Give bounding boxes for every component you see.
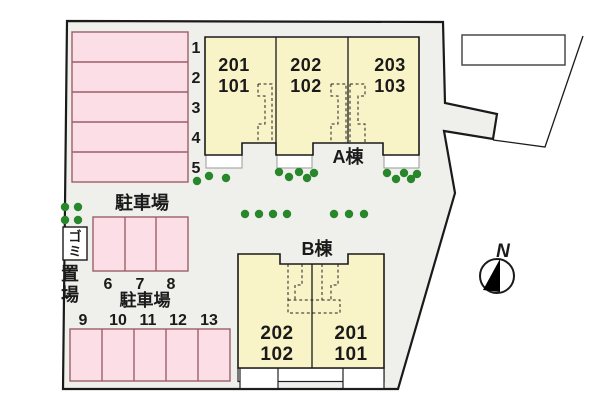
- parking-space-number: 1: [192, 40, 201, 57]
- parking-space-number: 12: [169, 312, 187, 329]
- parking-lot-lower-outline: [70, 329, 230, 381]
- unit-number: 201: [218, 55, 250, 75]
- building-a-balcony: [384, 155, 419, 168]
- unit-number: 202: [260, 323, 293, 344]
- site-plan-canvas: 1 2 3 4 5 駐車場 6 7 8 駐車場 9 10 11 12 13 ゴ …: [0, 0, 600, 400]
- unit-number: 101: [218, 76, 250, 96]
- parking-lot-upper-outline: [72, 32, 188, 182]
- building-b-label: B棟: [302, 238, 334, 259]
- unit-number: 101: [334, 344, 367, 365]
- unit-number: 103: [374, 76, 406, 96]
- parking-space-number: 4: [192, 130, 201, 147]
- unit-number: 201: [334, 323, 367, 344]
- building-a-balcony: [206, 155, 242, 168]
- blank-label-box: [462, 35, 565, 65]
- building-a-label: A棟: [333, 146, 365, 167]
- unit-number: 203: [374, 55, 406, 75]
- parking-space-number: 6: [104, 276, 113, 293]
- parking-lot-middle-label: 駐車場: [120, 290, 171, 310]
- parking-space-number: 9: [79, 312, 88, 329]
- garbage-char: 置: [61, 264, 79, 284]
- parking-space-number: 2: [192, 70, 201, 87]
- parking-lot-middle: [93, 217, 188, 271]
- parking-lot-upper: [72, 32, 188, 182]
- compass: N: [480, 241, 514, 293]
- building-b-porch: [343, 368, 384, 389]
- parking-space-number: 11: [140, 312, 157, 329]
- site-plan: 1 2 3 4 5 駐車場 6 7 8 駐車場 9 10 11 12 13 ゴ …: [0, 0, 600, 400]
- parking-space-number: 13: [200, 312, 218, 329]
- building-a: 201 101 202 102 203 103 A棟: [205, 37, 419, 168]
- building-b-porch: [240, 368, 278, 389]
- garbage-char: ゴ: [68, 229, 81, 244]
- unit-number: 102: [260, 344, 293, 365]
- parking-lot-lower: [70, 329, 230, 381]
- parking-lot-middle-outline: [93, 217, 188, 271]
- garbage-char: 場: [61, 285, 79, 305]
- parking-space-number: 10: [109, 312, 127, 329]
- north-label: N: [496, 241, 511, 262]
- garbage-char: ミ: [68, 244, 81, 259]
- parking-space-number: 3: [192, 100, 201, 117]
- parking-space-number: 5: [192, 160, 201, 177]
- parking-lot-upper-label: 駐車場: [115, 192, 169, 213]
- building-a-balcony: [277, 155, 312, 168]
- unit-number: 202: [290, 55, 322, 75]
- unit-number: 102: [290, 76, 322, 96]
